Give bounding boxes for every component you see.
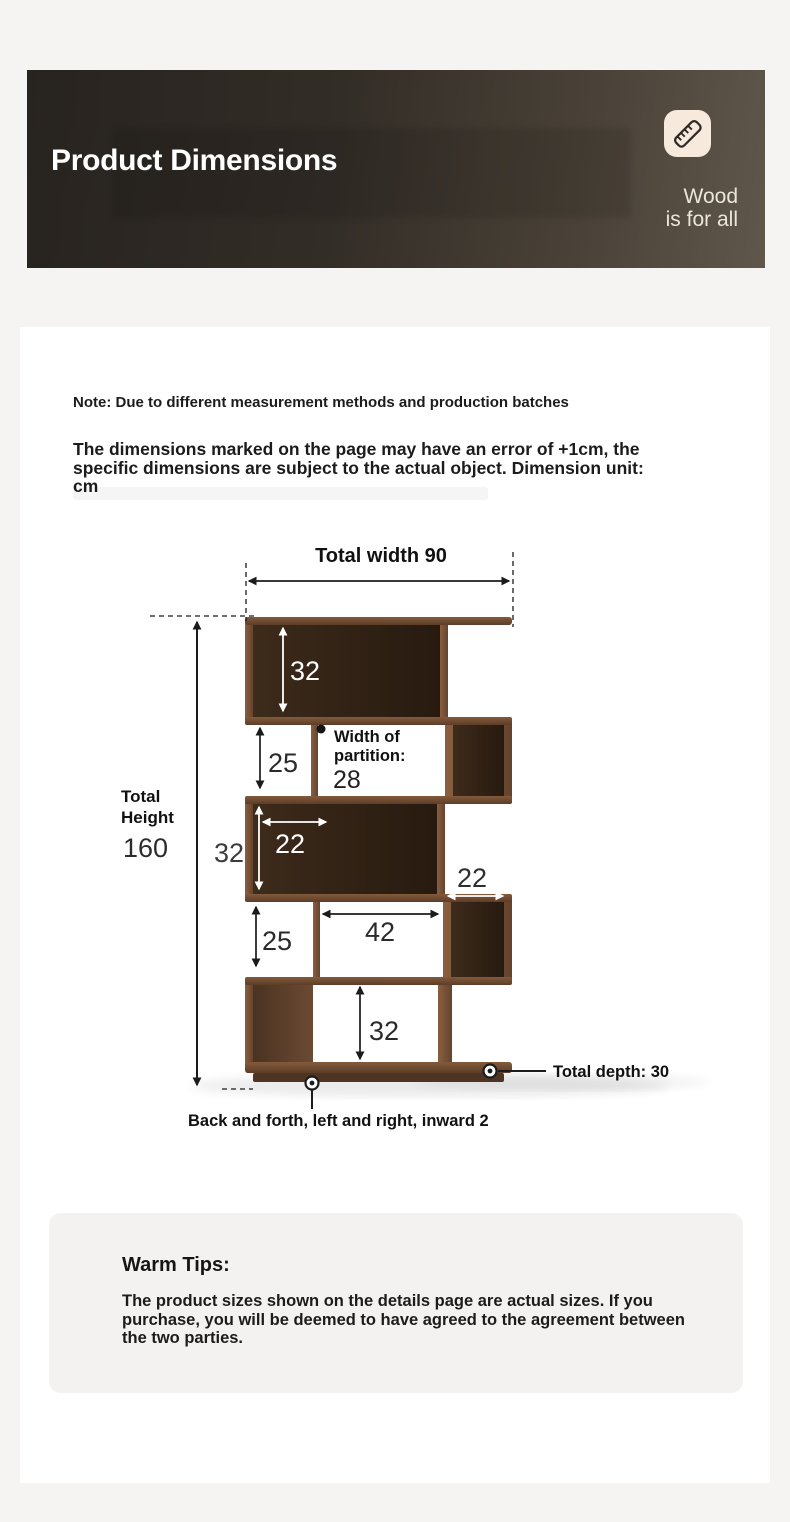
ruler-icon xyxy=(664,110,711,157)
total-height-label-1: Total xyxy=(121,787,160,806)
row4-partition xyxy=(313,894,320,985)
total-height-value: 160 xyxy=(123,833,168,863)
row2-height-value: 25 xyxy=(268,748,298,778)
shelf-board-2 xyxy=(245,717,512,725)
row5-left-wall xyxy=(245,977,253,1073)
partition-callout-dot xyxy=(317,725,326,734)
ruler-icon-glyph xyxy=(668,114,708,154)
blur-artifact xyxy=(73,487,488,500)
row3-partition xyxy=(437,796,445,902)
row4-right-width-value: 22 xyxy=(457,863,487,893)
bottom-board xyxy=(245,1062,512,1073)
warm-tips-body: The product sizes shown on the details p… xyxy=(122,1292,697,1348)
row4-box-interior xyxy=(451,902,504,977)
base-plinth xyxy=(253,1073,504,1082)
inset-note-label: Back and forth, left and right, inward 2 xyxy=(188,1112,489,1130)
shelf-board-3 xyxy=(245,796,512,804)
row4-height-value: 25 xyxy=(262,926,292,956)
brand-tagline-line2: is for all xyxy=(666,208,738,231)
row3-left-wall xyxy=(245,796,253,902)
row1-left-wall xyxy=(245,617,253,725)
row3-width-value: 22 xyxy=(275,829,305,859)
row5-height-value: 32 xyxy=(369,1016,399,1046)
row3-height-value: 32 xyxy=(214,838,244,868)
partition-label-2: partition: xyxy=(334,747,406,765)
row2-box-interior xyxy=(453,725,504,796)
row1-height-value: 32 xyxy=(290,656,320,686)
depth-note-label: Total depth: 30 xyxy=(553,1063,669,1081)
header-banner: Product Dimensions Wood is for all xyxy=(27,70,765,268)
brand-tagline-line1: Wood xyxy=(666,185,738,208)
page-title: Product Dimensions xyxy=(51,144,337,178)
brand-tagline: Wood is for all xyxy=(666,185,738,231)
total-width-label: Total width 90 xyxy=(315,545,447,567)
shelf-board-5 xyxy=(245,977,512,985)
row5-side-face xyxy=(253,984,313,1064)
row1-back-panel xyxy=(253,624,441,719)
row4-middle-width-value: 42 xyxy=(365,917,395,947)
row1-partition xyxy=(440,617,448,725)
top-board xyxy=(245,617,512,625)
note-text: Note: Due to different measurement metho… xyxy=(73,394,693,411)
partition-value: 28 xyxy=(333,766,361,794)
warm-tips-title: Warm Tips: xyxy=(122,1254,230,1277)
partition-label-1: Width of xyxy=(334,728,400,746)
total-height-label-2: Height xyxy=(121,808,174,827)
dimension-diagram: Total width 90 Total Height 160 32 25 Wi… xyxy=(0,520,790,1140)
row5-partition xyxy=(438,977,452,1073)
